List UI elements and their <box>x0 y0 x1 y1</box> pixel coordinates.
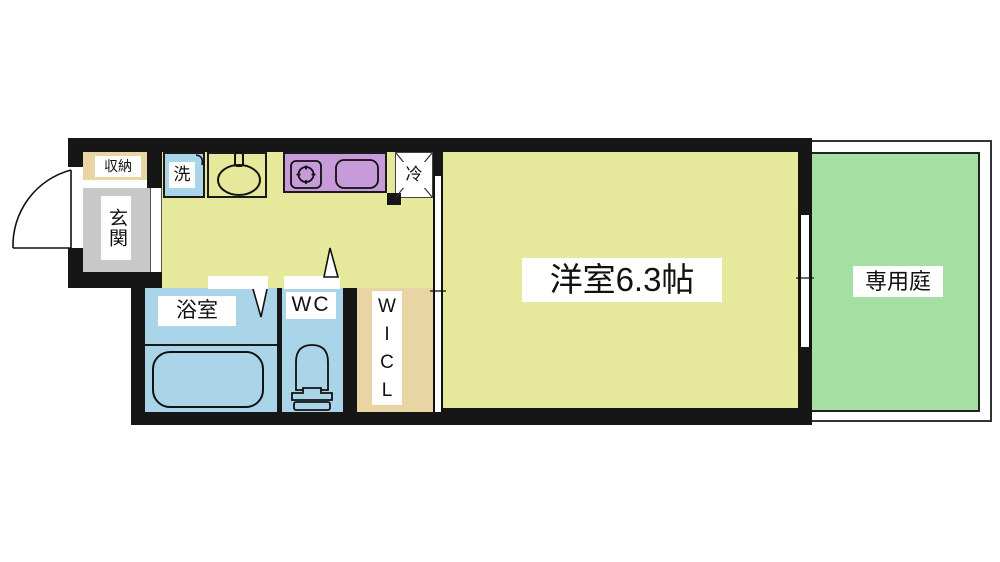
bathroom-divider-line <box>145 344 277 346</box>
fridge-label: 冷 <box>401 162 427 188</box>
wall-fridge-stub <box>387 193 401 205</box>
closet-label: W I C L <box>372 291 402 405</box>
entrance-step-strip <box>150 188 162 272</box>
storage-door-gap <box>83 180 147 188</box>
storage-label: 収納 <box>95 156 141 177</box>
garden-label: 専用庭 <box>853 266 943 297</box>
floor-plan: 収納 玄関 洗 冷 浴室 WC W I C L 洋室6.3帖 専用庭 <box>0 0 1000 562</box>
main-room-label: 洋室6.3帖 <box>522 258 722 302</box>
entrance-door-icon <box>13 170 71 248</box>
sliding-door-main <box>433 176 443 412</box>
sliding-window-garden <box>799 215 811 347</box>
basin-counter <box>207 152 267 198</box>
washer-label: 洗 <box>169 162 195 188</box>
entrance-label: 玄関 <box>101 196 131 260</box>
toilet-label: WC <box>286 292 336 319</box>
kitchen-counter <box>283 152 387 193</box>
bathroom-label: 浴室 <box>158 296 236 326</box>
